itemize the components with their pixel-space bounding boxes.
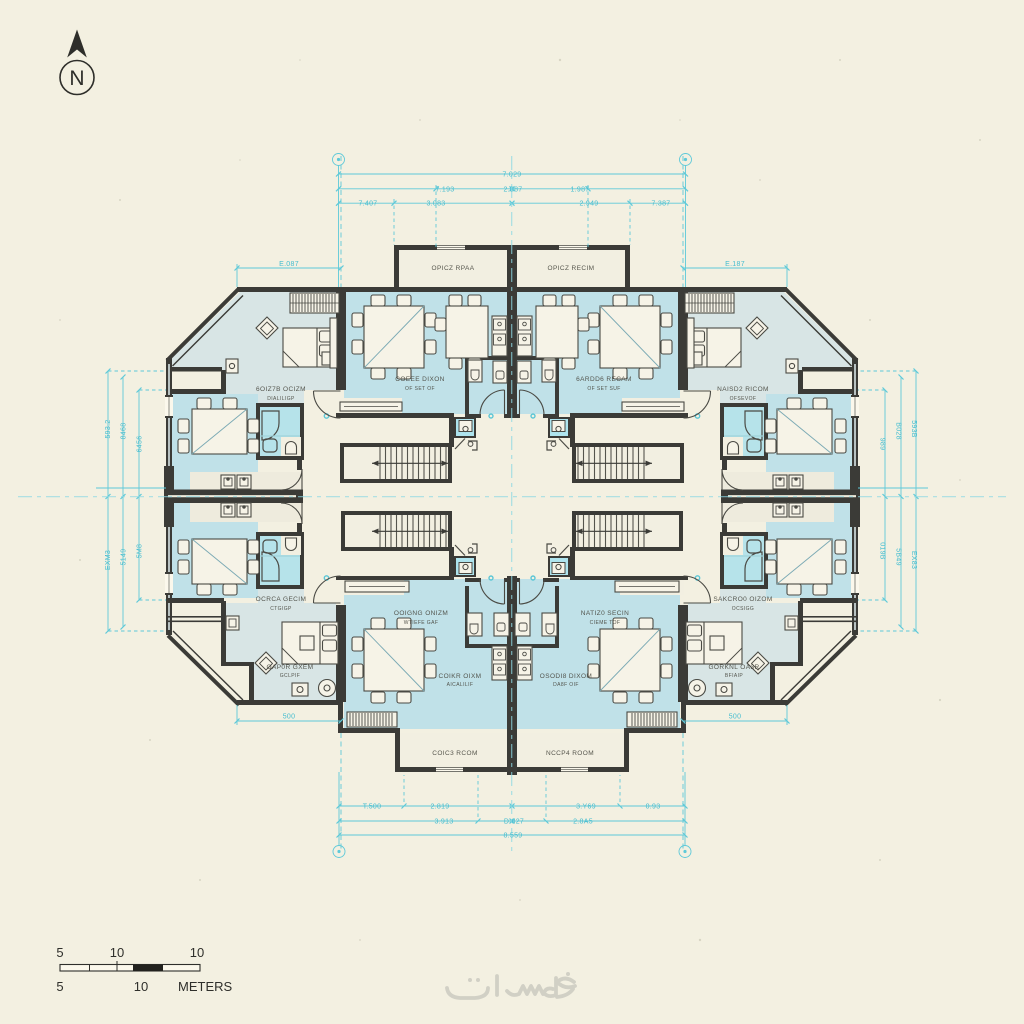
svg-text:OPICZ RECIM: OPICZ RECIM xyxy=(547,265,594,272)
svg-text:2.949: 2.949 xyxy=(579,201,598,208)
svg-text:GCLPIF: GCLPIF xyxy=(280,673,300,679)
svg-text:EXM3: EXM3 xyxy=(105,550,112,570)
svg-text:7.029: 7.029 xyxy=(502,172,521,179)
svg-text:7.407: 7.407 xyxy=(358,201,377,208)
svg-text:B028: B028 xyxy=(895,422,902,440)
svg-text:5B49: 5B49 xyxy=(895,548,902,566)
svg-text:10: 10 xyxy=(190,945,204,960)
svg-text:2.087: 2.087 xyxy=(503,186,522,193)
svg-text:989: 989 xyxy=(879,438,886,451)
svg-text:OF SET SUF: OF SET SUF xyxy=(587,386,620,392)
svg-text:500: 500 xyxy=(729,714,742,721)
svg-text:CIEME TOF: CIEME TOF xyxy=(590,620,621,626)
svg-text:593.2: 593.2 xyxy=(105,419,112,438)
svg-text:T.500: T.500 xyxy=(363,804,382,811)
svg-text:3.913: 3.913 xyxy=(434,819,453,826)
svg-text:2.8A5: 2.8A5 xyxy=(573,819,593,826)
svg-text:D.827: D.827 xyxy=(504,819,524,826)
svg-text:3.083: 3.083 xyxy=(426,201,445,208)
svg-text:7.387: 7.387 xyxy=(651,201,670,208)
svg-text:CTGIGP: CTGIGP xyxy=(270,606,292,612)
svg-text:COEEE DIXON: COEEE DIXON xyxy=(395,376,445,383)
svg-text:7.193: 7.193 xyxy=(435,186,454,193)
svg-text:COIC3 RCOM: COIC3 RCOM xyxy=(432,750,478,757)
svg-text:OFSEVOF: OFSEVOF xyxy=(730,396,757,402)
svg-text:OCSIGG: OCSIGG xyxy=(732,606,754,612)
svg-text:6OIZ7B OCIZM: 6OIZ7B OCIZM xyxy=(256,386,306,393)
svg-text:5149: 5149 xyxy=(121,549,128,566)
svg-text:10: 10 xyxy=(134,979,148,994)
svg-text:6ARDD6 RECAM: 6ARDD6 RECAM xyxy=(576,376,632,383)
svg-text:BFIAIP: BFIAIP xyxy=(725,673,744,679)
svg-text:10: 10 xyxy=(110,945,124,960)
svg-text:6456: 6456 xyxy=(137,436,144,453)
svg-text:1.987: 1.987 xyxy=(570,186,589,193)
svg-text:EX83: EX83 xyxy=(910,551,917,569)
svg-text:WTIEFE GAF: WTIEFE GAF xyxy=(404,620,439,626)
svg-text:5: 5 xyxy=(56,945,63,960)
svg-text:AICALILIF: AICALILIF xyxy=(447,682,474,688)
svg-text:SAKCRO0 OIZOM: SAKCRO0 OIZOM xyxy=(713,596,772,603)
svg-text:OOIGNG ONIZM: OOIGNG ONIZM xyxy=(394,610,448,617)
svg-text:5: 5 xyxy=(56,979,63,994)
svg-text:NATIZ0 SECIN: NATIZ0 SECIN xyxy=(581,610,629,617)
svg-text:019B: 019B xyxy=(879,542,886,560)
svg-text:593B: 593B xyxy=(910,420,917,438)
svg-text:3.Y69: 3.Y69 xyxy=(576,804,596,811)
svg-text:DA8F OIF: DA8F OIF xyxy=(553,682,579,688)
svg-text:E.087: E.087 xyxy=(279,261,299,268)
svg-text:GORKNL OA3R: GORKNL OA3R xyxy=(708,664,759,671)
svg-text:DIALILIGP: DIALILIGP xyxy=(267,396,295,402)
svg-text:N: N xyxy=(69,67,84,90)
svg-text:OF SET OF: OF SET OF xyxy=(405,386,435,392)
svg-text:NCCP4 ROOM: NCCP4 ROOM xyxy=(546,750,594,757)
svg-text:E.187: E.187 xyxy=(725,261,745,268)
svg-text:500: 500 xyxy=(283,714,296,721)
svg-text:5M8: 5M8 xyxy=(137,544,144,559)
svg-text:COIKR OIXM: COIKR OIXM xyxy=(438,673,481,680)
svg-text:METERS: METERS xyxy=(178,979,233,994)
svg-text:8.559: 8.559 xyxy=(503,833,522,840)
svg-text:0.93: 0.93 xyxy=(646,804,661,811)
svg-text:OCRCA GECIM: OCRCA GECIM xyxy=(256,596,307,603)
svg-text:OSODI8 DIXOM: OSODI8 DIXOM xyxy=(540,673,592,680)
svg-text:8468: 8468 xyxy=(121,423,128,440)
svg-text:OAP0R GXEM: OAP0R GXEM xyxy=(267,664,314,671)
svg-text:NAISD2 RICOM: NAISD2 RICOM xyxy=(717,386,769,393)
svg-text:2.819: 2.819 xyxy=(430,804,449,811)
svg-text:OPICZ RPAA: OPICZ RPAA xyxy=(432,265,475,272)
